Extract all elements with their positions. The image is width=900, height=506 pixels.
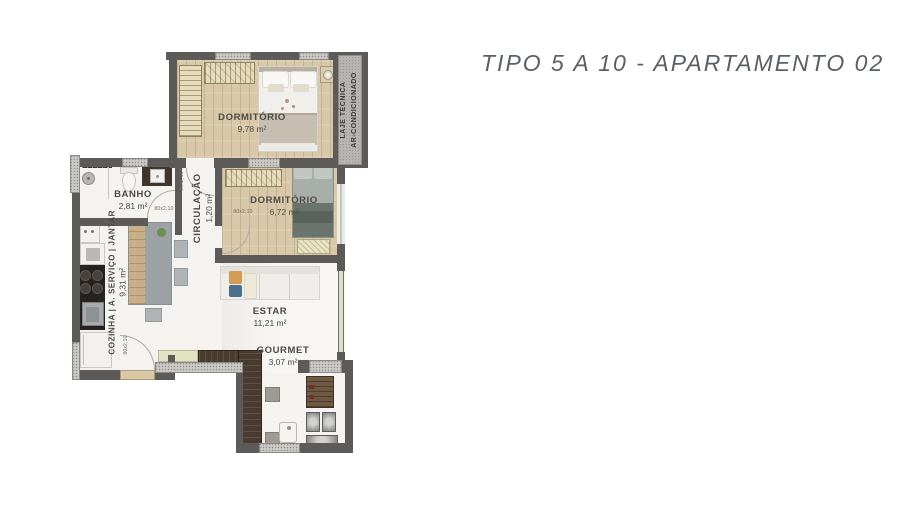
wall-segment [215,158,222,226]
laje-line1: LAJE TÉCNICA [340,82,347,139]
room-name: CIRCULAÇÃO [192,163,204,253]
bed-flower-decor [281,107,284,110]
nightstand [320,66,334,83]
door-size-label: 80x2,10 [149,206,179,212]
room-name: COZINHA | A. SERVIÇO | JANTAR [108,207,118,357]
sofa [220,266,320,300]
bed-pillow [294,167,312,179]
wall-segment [222,255,345,263]
wall-segment [345,373,353,453]
bath-vanity [142,166,172,186]
pillar-hatch [299,52,329,60]
dining-chair [145,308,162,322]
bed-accent-pillow [293,84,309,92]
dining-chair [174,268,188,286]
shower-drain-dot [87,177,90,180]
pillar-hatch [122,158,148,167]
page: TIPO 5 A 10 - APARTAMENTO 02 [0,0,900,506]
room-label-dormitorio1: DORMITÓRIO 9,78 m² [192,112,312,135]
faucet-dot [287,426,291,430]
fridge-handle [83,335,84,365]
wall-segment [300,443,353,453]
bed-flower-decor [285,99,289,103]
bar-chair [265,387,280,402]
bed-flower-decor [292,105,295,108]
sink-drain-dot [156,175,159,178]
pillar-hatch [72,342,80,380]
oven-door [86,248,100,261]
bed-pillow [314,167,332,179]
pillar-hatch [215,52,251,60]
wardrobe [204,62,255,84]
dining-bench [129,223,145,304]
bed-foot [261,143,315,151]
room-area: 3,07 m² [223,357,343,368]
room-name: DORMITÓRIO [192,112,312,124]
room-name: ESTAR [210,306,330,318]
laje-line2: AR-CONDICIONADO [351,72,358,148]
page-title: TIPO 5 A 10 - APARTAMENTO 02 [481,50,884,77]
gourmet-sink [279,422,297,443]
cooktop-burner [80,283,91,294]
pillar-hatch [70,155,80,193]
cooktop-counter [77,265,105,330]
kitchen-sink [82,302,104,326]
door-size-label: 80x2,10 [179,166,185,196]
glass-sliding-door [338,271,344,352]
sofa-pillow [229,285,242,297]
microwave [80,225,100,243]
cooktop-burner [80,270,91,281]
room-name: DORMITÓRIO [224,195,344,207]
sofa-pillow [229,271,242,284]
bed-accent-pillow [268,84,284,92]
wardrobe [225,169,282,187]
grill-accent [309,385,314,389]
wall-segment [169,60,177,158]
knob-dot [91,230,94,233]
wall-segment [215,248,222,263]
room-area: 9,78 m² [192,124,312,135]
plant [157,228,166,237]
pillar-hatch [259,443,300,453]
door-size-label: 90x2,10 [123,330,129,360]
door-threshold [120,370,155,380]
oven [80,243,105,265]
knob-dot [84,230,87,233]
room-label-circulacao: CIRCULAÇÃO 1,20 m² [192,163,215,253]
bedside-lamp [323,70,333,80]
wall-segment [362,55,368,168]
sink-basin [86,307,99,322]
wall-segment [243,443,259,453]
grill-counter [306,376,334,408]
grill-accent [309,395,314,399]
dining-table [128,222,172,305]
technical-slab-label: LAJE TÉCNICA AR-CONDICIONADO [339,58,361,162]
room-label-estar: ESTAR 11,21 m² [210,306,330,329]
bed-bench [297,239,330,254]
vanity-sink [150,169,165,183]
wall-segment [236,362,243,453]
floor-plan: LAJE TÉCNICA AR-CONDICIONADO DORMITÓRIO … [62,12,374,464]
sofa-seat-divider [259,274,260,299]
room-area: 11,21 m² [210,318,330,329]
cooktop-burner [92,270,103,281]
counter-pale [158,350,198,362]
door-size-label: 80x2,10 [225,209,261,215]
pillar-hatch [248,158,280,168]
sofa-seat-divider [289,274,290,299]
glass-door-post [337,255,345,271]
sofa-pillow [244,273,257,299]
dining-chair [174,240,188,258]
cooktop-burner [92,283,103,294]
room-name: GOURMET [223,345,343,357]
shower-head [82,172,95,185]
room-area: 1,20 m² [204,163,215,253]
cabinet [322,412,336,432]
double-bed [258,66,318,152]
room-label-gourmet: GOURMET 3,07 m² [223,345,343,368]
room-name: BANHO [73,189,193,201]
cabinet [306,412,320,432]
